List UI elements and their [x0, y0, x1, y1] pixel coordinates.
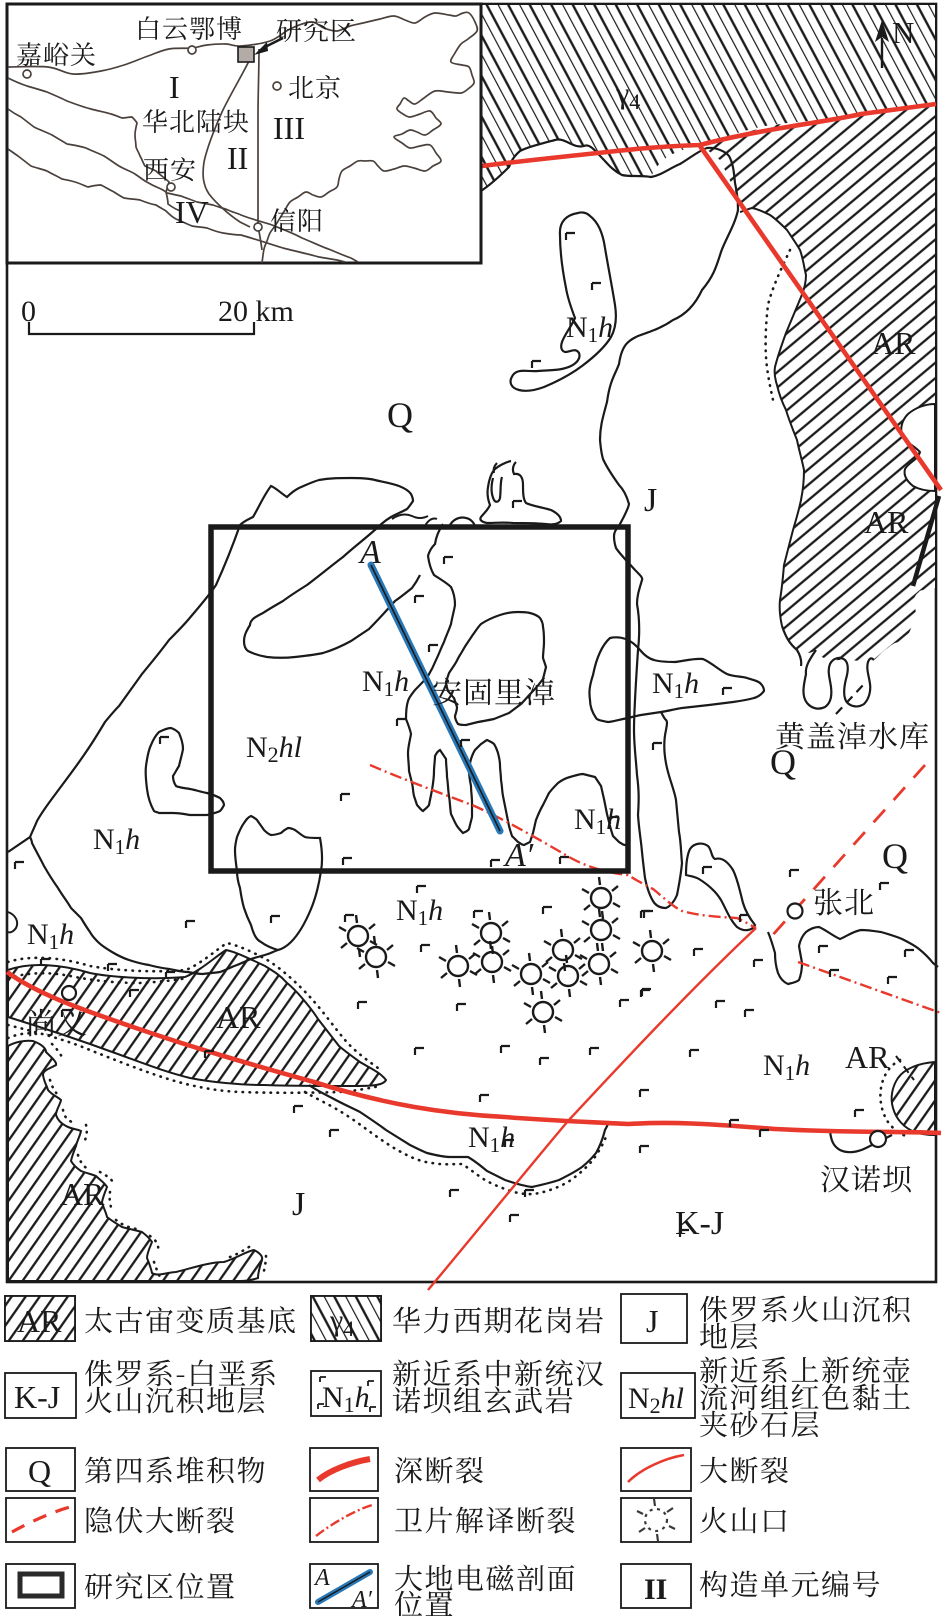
- svg-text:AR: AR: [17, 1303, 62, 1339]
- svg-text:Q: Q: [28, 1453, 51, 1489]
- svg-text:J: J: [644, 482, 657, 519]
- svg-text:Q: Q: [387, 395, 413, 435]
- svg-text:J: J: [646, 1303, 658, 1339]
- svg-text:III: III: [273, 110, 305, 146]
- svg-text:A: A: [358, 534, 381, 571]
- svg-text:AR: AR: [864, 504, 909, 540]
- svg-text:20 km: 20 km: [218, 295, 294, 328]
- svg-text:AR: AR: [60, 1176, 105, 1212]
- svg-text:N: N: [892, 15, 914, 50]
- svg-text:K-J: K-J: [14, 1379, 60, 1415]
- svg-text:Q: Q: [770, 742, 796, 782]
- svg-text:I: I: [169, 69, 180, 105]
- svg-text:AR: AR: [845, 1039, 890, 1075]
- svg-text:A: A: [313, 1565, 330, 1591]
- svg-text:K-J: K-J: [675, 1205, 724, 1242]
- svg-text:A′: A′: [350, 1587, 373, 1613]
- svg-text:0: 0: [21, 295, 36, 328]
- svg-text:II: II: [644, 1573, 667, 1606]
- svg-text:J: J: [292, 1186, 305, 1223]
- svg-text:AR: AR: [871, 325, 916, 361]
- svg-text:A′: A′: [503, 837, 534, 874]
- svg-text:IV: IV: [175, 194, 209, 230]
- svg-text:II: II: [227, 140, 248, 176]
- svg-text:AR: AR: [216, 999, 261, 1035]
- svg-text:Q: Q: [882, 836, 908, 876]
